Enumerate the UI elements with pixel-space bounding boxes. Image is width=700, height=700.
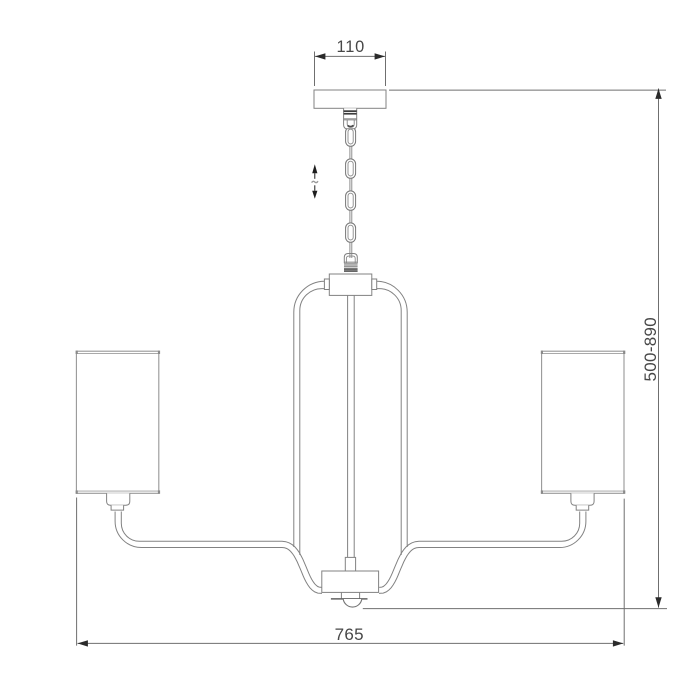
svg-text:110: 110 bbox=[337, 38, 366, 56]
svg-text:500-890: 500-890 bbox=[641, 317, 660, 382]
svg-text:765: 765 bbox=[335, 625, 364, 644]
